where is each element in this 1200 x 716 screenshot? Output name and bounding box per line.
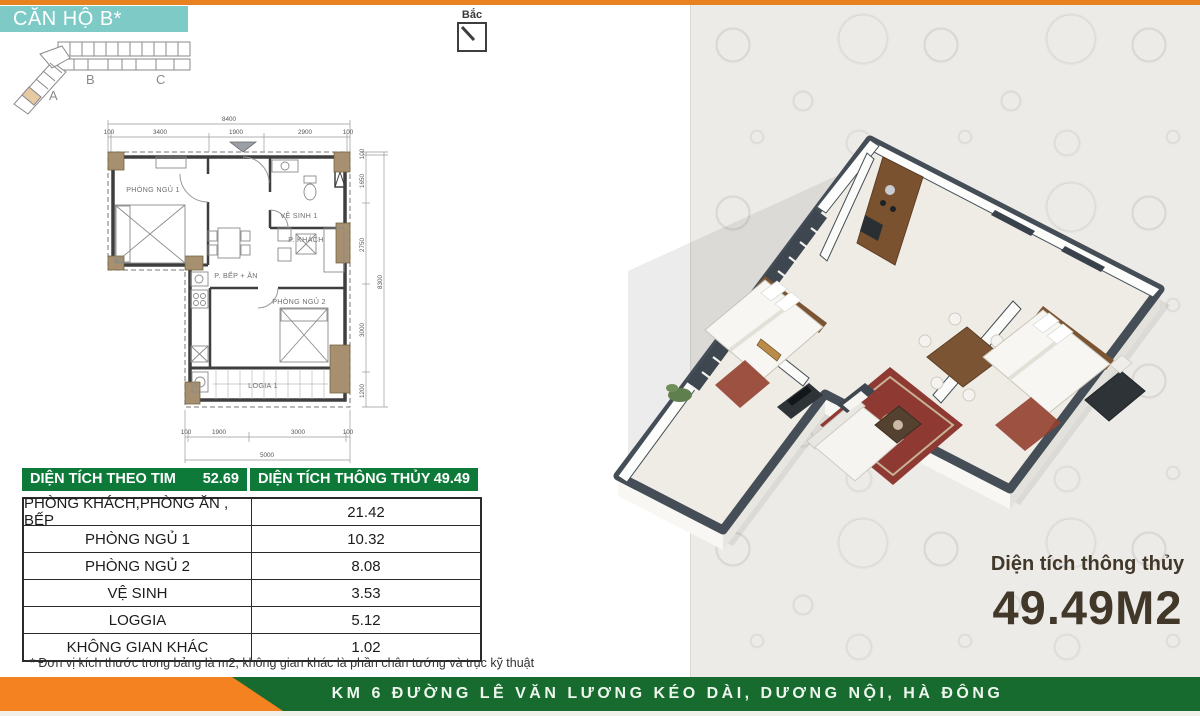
area-table: PHÒNG KHÁCH,PHÒNG ĂN , BẾP21.42 PHÒNG NG… [22,497,482,662]
dim-right-2: 2750 [359,238,366,253]
table-row: PHÒNG NGỦ 28.08 [24,552,480,579]
room-label-loggia: LOGIA 1 [248,381,278,390]
area-callout: Diện tích thông thủy 49.49M2 [975,553,1200,635]
row-label: LOGGIA [24,607,252,633]
table-header-theo-tim-label: DIỆN TÍCH THEO TIM [30,471,176,487]
room-label-bedroom2: PHÒNG NGỦ 2 [272,297,326,306]
dim-top-4: 100 [343,129,354,136]
table-header-thong-thuy-label: DIỆN TÍCH THÔNG THỦY [258,471,430,487]
dim-bottom-1: 1900 [212,429,227,436]
key-plan-label-a: A [49,88,58,103]
table-header-theo-tim: DIỆN TÍCH THEO TIM 52.69 [22,468,247,491]
room-label-wc: VỆ SINH 1 [280,211,317,220]
compass: Bắc [449,9,495,52]
row-label: PHÒNG NGỦ 2 [24,553,252,579]
row-value: 3.53 [252,580,480,606]
table-row: LOGGIA5.12 [24,606,480,633]
area-callout-value: 49.49M2 [975,580,1200,635]
key-plan-label-b: B [86,72,95,87]
floor-plan-2d: PHÒNG NGỦ 1 VỆ SINH 1 P. KHÁCH P. BẾP + … [58,110,418,472]
row-label: PHÒNG NGỦ 1 [24,526,252,552]
dim-right-1: 1650 [359,174,366,189]
dim-bottom-2: 3000 [291,429,306,436]
dim-top-3: 2900 [298,129,313,136]
dim-bottom-3: 100 [343,429,354,436]
dim-right-0: 100 [359,148,366,159]
entry-marker [230,142,256,152]
bottom-strip [0,711,1200,716]
dim-right-total: 8300 [377,275,384,290]
row-value: 10.32 [252,526,480,552]
row-label: VỆ SINH [24,580,252,606]
apartment-3d-render [565,95,1195,625]
table-header-theo-tim-value: 52.69 [203,468,239,491]
north-arrow-icon [457,22,487,52]
row-value: 8.08 [252,553,480,579]
dim-right-4: 1200 [359,384,366,399]
compass-label: Bắc [449,9,495,21]
room-label-bedroom1: PHÒNG NGỦ 1 [126,185,180,194]
room-label-kitchen: P. BẾP + ĂN [214,270,258,280]
dim-bottom-total: 5000 [260,452,275,459]
dim-top-total: 8400 [222,116,237,123]
table-header-thong-thuy-value: 49.49 [434,468,470,491]
row-label: PHÒNG KHÁCH,PHÒNG ĂN , BẾP [24,499,252,525]
row-value: 21.42 [252,499,480,525]
dim-right-3: 3000 [359,323,366,338]
table-footnote: * Đơn vị kích thước trong bảng là m2, kh… [30,656,534,670]
table-header-thong-thuy: DIỆN TÍCH THÔNG THỦY 49.49 [250,468,478,491]
area-callout-label: Diện tích thông thủy [975,553,1200,576]
table-row: PHÒNG NGỦ 110.32 [24,525,480,552]
row-value: 5.12 [252,607,480,633]
room-label-living: P. KHÁCH [288,235,323,244]
building-key-plan: A B C [12,38,202,116]
unit-title: CĂN HỘ B* [0,6,188,32]
key-plan-label-c: C [156,72,165,87]
dim-top-0: 100 [104,129,115,136]
dim-bottom-0: 100 [181,429,192,436]
footer-address: KM 6 ĐƯỜNG LÊ VĂN LƯƠNG KÉO DÀI, DƯƠNG N… [0,677,1200,711]
dim-top-1: 3400 [153,129,168,136]
dim-top-2: 1900 [229,129,244,136]
table-row: VỆ SINH3.53 [24,579,480,606]
table-row: PHÒNG KHÁCH,PHÒNG ĂN , BẾP21.42 [24,499,480,525]
